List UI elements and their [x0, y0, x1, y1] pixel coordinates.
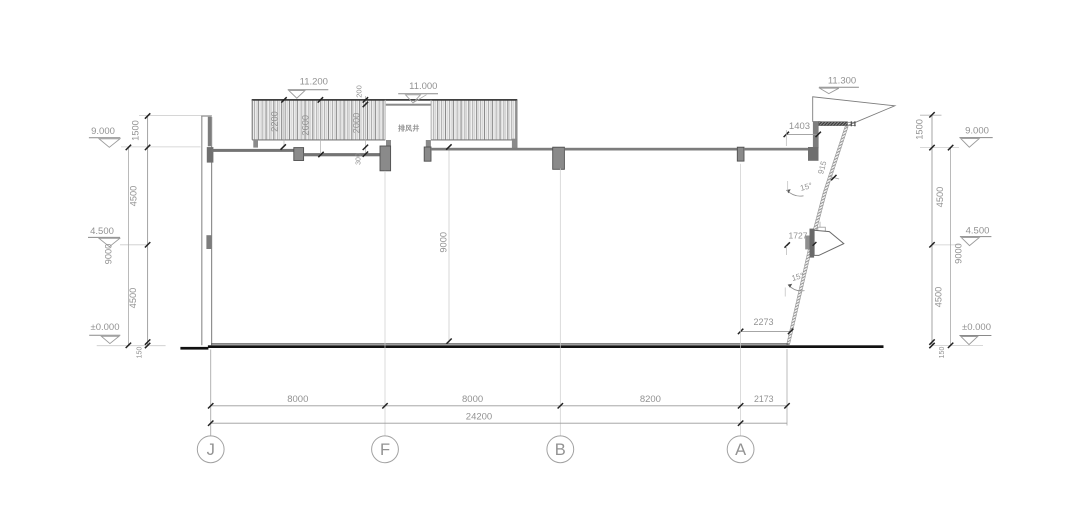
svg-text:11.300: 11.300: [828, 76, 856, 87]
svg-text:1500: 1500: [915, 119, 925, 140]
svg-text:150: 150: [939, 347, 946, 359]
svg-text:±0.000: ±0.000: [91, 322, 120, 333]
svg-text:24200: 24200: [466, 411, 492, 422]
svg-text:A: A: [735, 441, 746, 459]
svg-text:2200: 2200: [270, 111, 280, 132]
svg-text:2273: 2273: [753, 317, 773, 327]
svg-text:300: 300: [355, 153, 362, 165]
svg-text:1727: 1727: [789, 231, 808, 241]
svg-text:4500: 4500: [129, 186, 139, 207]
svg-text:11.200: 11.200: [300, 77, 328, 88]
svg-text:B: B: [555, 441, 566, 459]
svg-text:9.000: 9.000: [965, 126, 989, 137]
svg-text:J: J: [207, 441, 215, 459]
svg-text:F: F: [380, 441, 390, 459]
svg-text:8000: 8000: [287, 394, 308, 405]
svg-text:4.500: 4.500: [90, 226, 114, 237]
svg-text:200: 200: [355, 85, 364, 98]
svg-text:9000: 9000: [439, 232, 449, 253]
svg-text:11.000: 11.000: [409, 81, 437, 92]
svg-text:4500: 4500: [934, 287, 944, 308]
svg-text:±0.000: ±0.000: [962, 322, 991, 333]
svg-text:8200: 8200: [640, 394, 661, 405]
svg-text:4500: 4500: [935, 187, 945, 208]
svg-text:8000: 8000: [462, 394, 483, 405]
svg-text:9000: 9000: [104, 244, 114, 265]
svg-text:9000: 9000: [954, 243, 964, 264]
svg-text:2173: 2173: [754, 394, 774, 404]
svg-text:1403: 1403: [789, 121, 810, 132]
svg-text:4500: 4500: [128, 288, 138, 309]
svg-text:4.500: 4.500: [966, 226, 990, 237]
svg-text:9.000: 9.000: [91, 126, 115, 137]
svg-text:1500: 1500: [131, 120, 141, 141]
svg-text:排风井: 排风井: [398, 123, 420, 132]
svg-text:2600: 2600: [301, 115, 311, 136]
svg-text:150: 150: [137, 347, 144, 359]
svg-text:2000: 2000: [352, 113, 362, 134]
